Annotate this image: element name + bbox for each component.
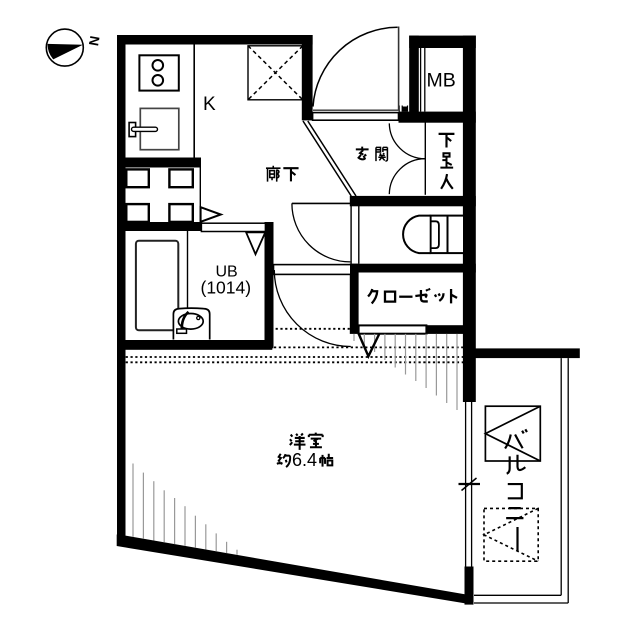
svg-text:(1014): (1014) [201, 278, 252, 298]
svg-text:K: K [203, 94, 216, 115]
svg-text:6.4: 6.4 [292, 450, 317, 470]
svg-text:MB: MB [427, 70, 456, 92]
